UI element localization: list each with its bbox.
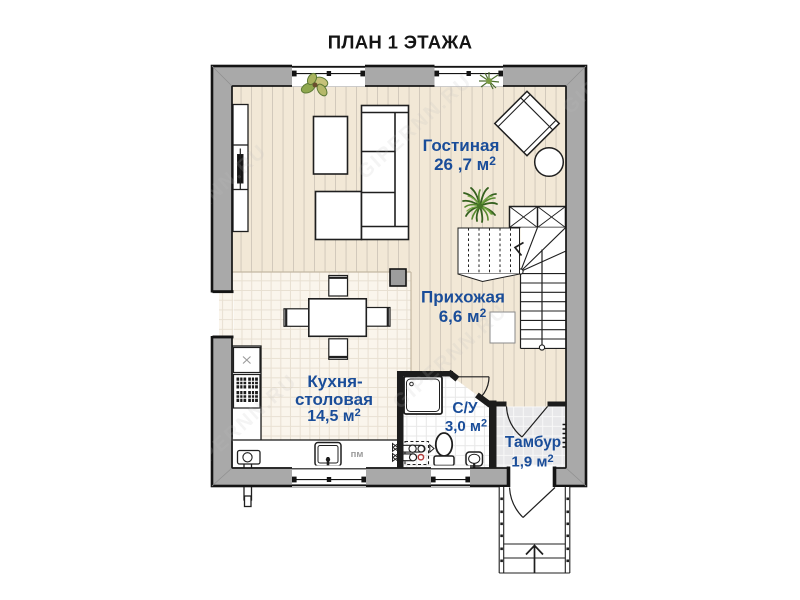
svg-text:С/У: С/У (452, 400, 478, 417)
svg-text:ПЛАН 1 ЭТАЖА: ПЛАН 1 ЭТАЖА (328, 32, 473, 53)
svg-text:Прихожая: Прихожая (421, 288, 505, 307)
svg-text:Гостиная: Гостиная (423, 136, 500, 155)
svg-text:6,6 м2: 6,6 м2 (439, 306, 487, 326)
svg-text:3,0 м2: 3,0 м2 (445, 418, 487, 436)
svg-text:столовая: столовая (295, 390, 373, 409)
svg-text:1,9 м2: 1,9 м2 (511, 453, 553, 471)
svg-text:Тамбур: Тамбур (505, 434, 561, 451)
svg-text:14,5 м2: 14,5 м2 (307, 407, 361, 425)
svg-text:26 ,7 м2: 26 ,7 м2 (434, 154, 496, 174)
svg-text:пм: пм (351, 449, 364, 460)
svg-text:Кухня-: Кухня- (307, 372, 362, 391)
